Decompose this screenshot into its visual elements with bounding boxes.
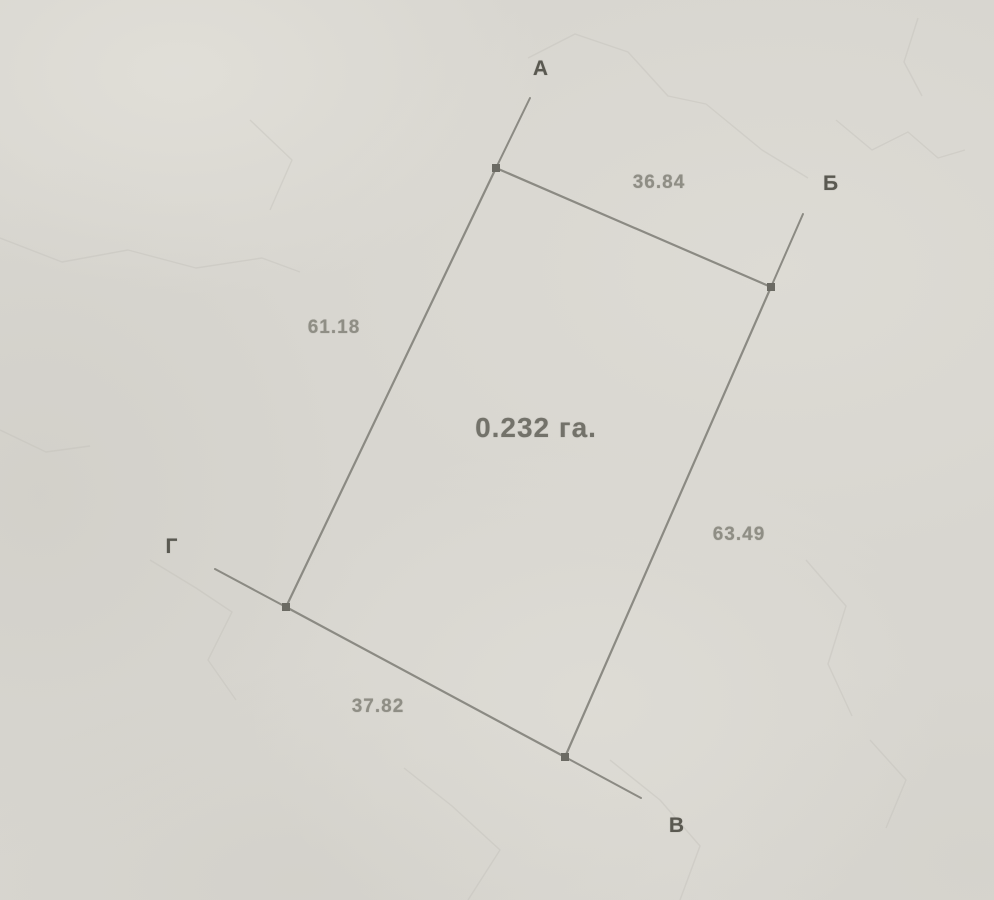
side-length-right: 63.49 xyxy=(713,524,766,546)
extension-v xyxy=(565,757,641,798)
corner-label-g: Г xyxy=(166,535,179,559)
corner-point-g xyxy=(282,603,290,611)
side-a-g xyxy=(286,168,496,607)
side-length-left: 61.18 xyxy=(308,317,361,339)
extension-a xyxy=(496,98,530,168)
corner-point-a xyxy=(492,164,500,172)
side-length-bottom: 37.82 xyxy=(352,696,405,718)
side-g-v xyxy=(286,607,565,757)
extension-g xyxy=(215,569,286,607)
parcel-boundary xyxy=(286,168,771,757)
side-length-top: 36.84 xyxy=(633,172,686,194)
corner-label-b: Б xyxy=(823,172,839,196)
paper-crease-lines xyxy=(0,18,965,900)
corner-point-v xyxy=(561,753,569,761)
scanned-parcel-plan: А Б В Г 36.84 63.49 37.82 61.18 0.232 га… xyxy=(0,0,994,900)
corner-label-a: А xyxy=(533,57,549,81)
corner-point-b xyxy=(767,283,775,291)
extension-b xyxy=(771,214,803,287)
side-b-v xyxy=(565,287,771,757)
parcel-area-label: 0.232 га. xyxy=(475,412,597,444)
corner-extension-lines xyxy=(215,98,803,798)
parcel-plan-drawing xyxy=(0,0,994,900)
corner-label-v: В xyxy=(669,814,685,838)
